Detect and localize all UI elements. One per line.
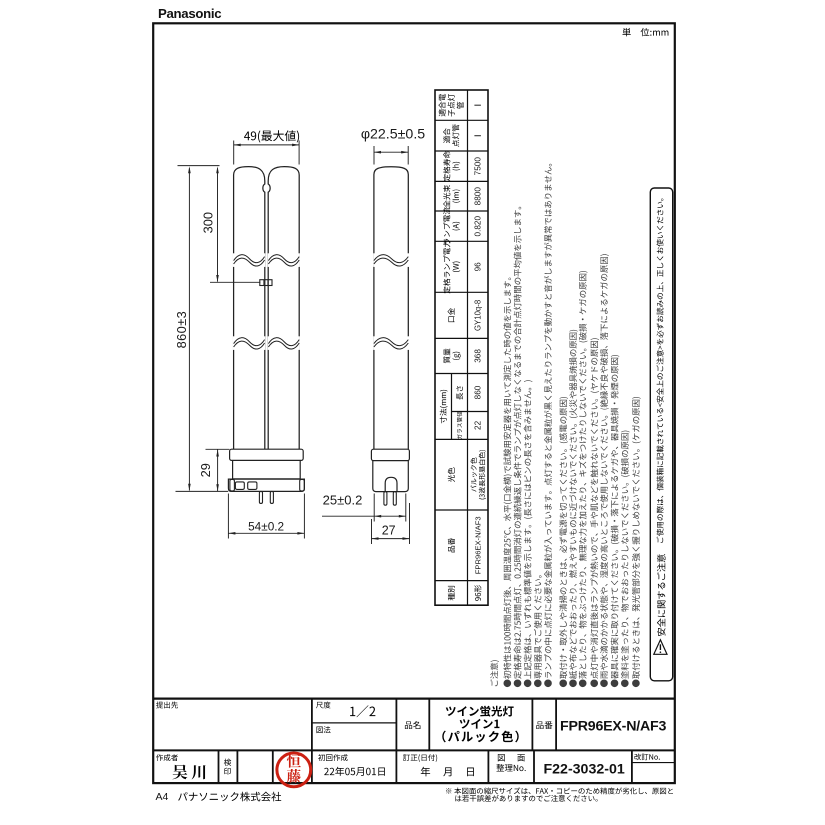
svg-text:22: 22 [474, 420, 483, 430]
svg-text:7500: 7500 [474, 157, 483, 176]
svg-text:0.820: 0.820 [474, 216, 483, 237]
svg-text:25±0.2: 25±0.2 [323, 493, 363, 508]
svg-text:860±3: 860±3 [174, 311, 189, 349]
svg-text:FPR96EX-N/AF3: FPR96EX-N/AF3 [473, 516, 482, 574]
svg-text:27: 27 [382, 523, 396, 537]
svg-text:FPR96EX-N/AF3: FPR96EX-N/AF3 [560, 718, 667, 734]
svg-text:29: 29 [198, 463, 213, 477]
svg-text:8800: 8800 [474, 187, 483, 206]
svg-text:A4: A4 [156, 791, 169, 803]
svg-text:Panasonic: Panasonic [158, 6, 221, 21]
svg-text:96: 96 [474, 262, 483, 272]
svg-text:860: 860 [474, 385, 483, 399]
svg-text:368: 368 [474, 349, 483, 363]
svg-text:54±0.2: 54±0.2 [248, 519, 284, 533]
svg-text:GY10q-8: GY10q-8 [474, 300, 483, 331]
svg-text:φ22.5±0.5: φ22.5±0.5 [361, 126, 425, 142]
svg-text:300: 300 [201, 212, 216, 233]
svg-text:F22-3032-01: F22-3032-01 [544, 762, 625, 778]
